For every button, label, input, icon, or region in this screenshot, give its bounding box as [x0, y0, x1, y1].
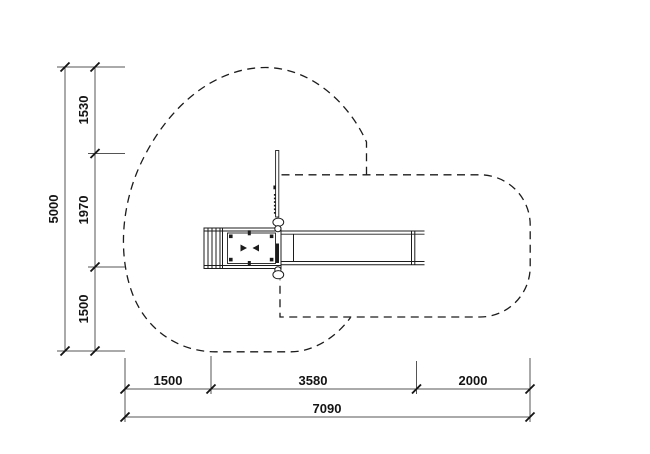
slide: [276, 231, 425, 265]
dim-label-horizontal-total: 7090: [313, 401, 342, 416]
arrow-right-icon: [241, 245, 248, 252]
platform-post: [229, 258, 233, 262]
entry-panel-pole: [273, 151, 278, 218]
platform: [223, 228, 282, 269]
platform-post: [270, 235, 274, 239]
technical-drawing: 5000 1530 1970 1500 1500 3580 2000 7090: [0, 0, 650, 454]
safety-zone-blob: [123, 68, 366, 352]
plan-view-canvas: 5000 1530 1970 1500 1500 3580 2000 7090: [0, 0, 650, 454]
platform-fixing: [248, 230, 251, 235]
post-bottom-ellipse: [273, 271, 284, 279]
platform-post: [229, 235, 233, 239]
slide-entry-bar: [276, 244, 279, 264]
dim-label-horizontal-segment-3: 2000: [459, 373, 488, 388]
horizontal-dimensions: 1500 3580 2000 7090: [121, 356, 535, 422]
post-top-circle: [275, 226, 281, 232]
dim-label-horizontal-segment-1: 1500: [154, 373, 183, 388]
dim-label-vertical-segment-2: 1970: [76, 196, 91, 225]
vertical-dimensions: 5000 1530 1970 1500: [46, 63, 125, 356]
arrow-left-icon: [253, 245, 260, 252]
platform-fixing: [248, 261, 251, 266]
pole-bracket: [273, 186, 275, 190]
equipment: [204, 151, 425, 279]
dim-label-vertical-total: 5000: [46, 195, 61, 224]
platform-post: [270, 258, 274, 262]
dim-label-vertical-segment-1: 1530: [76, 96, 91, 125]
safety-zone-boundary: [123, 68, 530, 352]
dim-label-horizontal-segment-2: 3580: [299, 373, 328, 388]
post-top-ellipse: [273, 218, 284, 226]
safety-zone-slide-rect: [280, 175, 530, 317]
dim-label-vertical-segment-3: 1500: [76, 295, 91, 324]
platform-deck: [228, 233, 276, 264]
